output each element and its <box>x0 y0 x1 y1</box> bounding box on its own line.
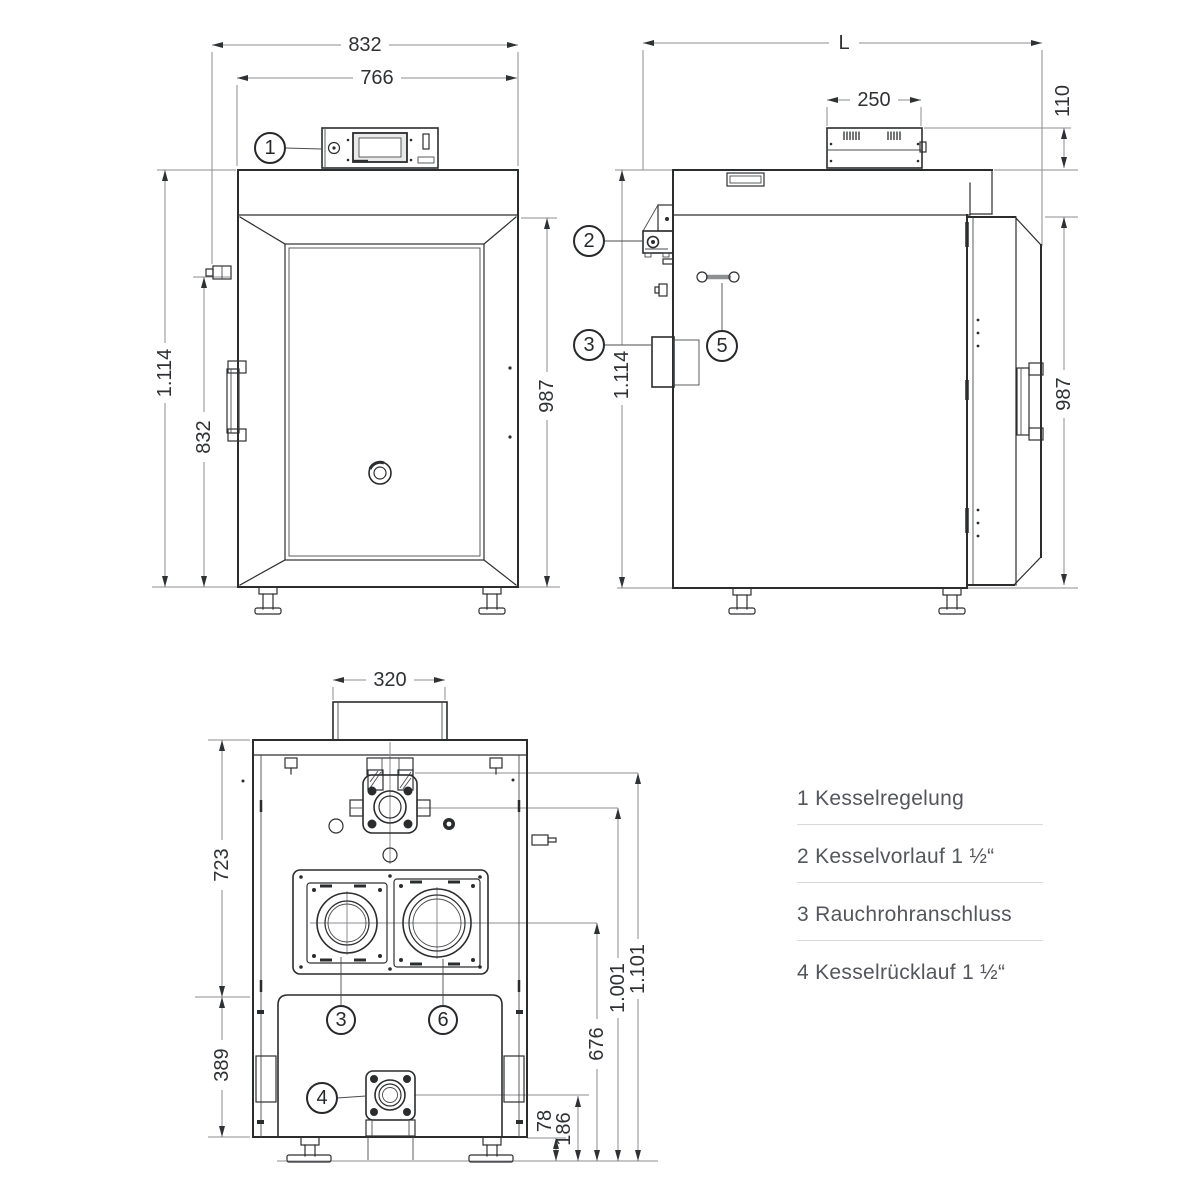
callout-number: 1 <box>264 137 275 159</box>
dim-label: 766 <box>360 67 393 89</box>
front-door-handle <box>227 361 246 441</box>
dim-label: 78 <box>534 1110 556 1132</box>
front-dim-width-outer: 832 <box>341 34 389 56</box>
dim-label: 832 <box>193 420 215 453</box>
side-flue-connection <box>652 337 699 387</box>
side-dim-panel-height: 110 <box>1052 85 1074 117</box>
dim-label: L <box>838 32 849 54</box>
legend-item-label: Kesselrücklauf 1 ½“ <box>815 961 1005 984</box>
side-dimension-lines <box>622 43 1064 588</box>
callout-rauchrohr: 3 <box>574 330 604 360</box>
front-dim-height-fitting: 832 <box>193 412 215 462</box>
rear-dim-lower-height: 389 <box>211 1040 233 1090</box>
rear-vorlauf-flange <box>350 742 430 864</box>
dim-label: 987 <box>1053 377 1075 410</box>
legend-item-label: Rauchrohranschluss <box>815 903 1012 926</box>
callout-number: 3 <box>335 1009 346 1031</box>
rear-dim-ruecklauf-center: 186 <box>553 1112 575 1145</box>
legend-item-number: 1 <box>797 787 809 810</box>
dim-label: 676 <box>586 1027 608 1060</box>
legend-item-label: Kesselregelung <box>815 787 964 810</box>
rear-dim-flange-top: 1.101 <box>627 939 649 999</box>
rear-dim-upper-height: 723 <box>211 840 233 890</box>
boiler-dimension-drawing: 832 766 1.114 832 987 <box>0 0 1200 1200</box>
front-callout-leader <box>285 148 322 149</box>
dim-label: 250 <box>857 89 890 111</box>
rear-dim-duct-width: 320 <box>366 669 414 691</box>
rear-lower-section <box>256 995 524 1137</box>
legend-item-number: 4 <box>797 961 809 984</box>
side-extension-lines <box>615 50 1078 588</box>
legend-item-number: 3 <box>797 903 809 926</box>
dim-label: 832 <box>348 34 381 56</box>
rear-opening-plate <box>293 870 488 974</box>
rear-ruecklauf-flange <box>366 1071 415 1160</box>
rear-dim-base-height: 78 <box>534 1110 556 1132</box>
dim-label: 1.114 <box>611 351 633 400</box>
front-dim-height-body: 987 <box>536 372 558 420</box>
callout-number: 5 <box>716 335 727 357</box>
legend-item-rauchrohranschluss: 3 Rauchrohranschluss <box>797 883 1043 941</box>
rear-dim-vorlauf-center: 1.001 <box>607 958 629 1018</box>
callout-number: 6 <box>437 1009 448 1031</box>
callout-vorlauf: 2 <box>574 226 604 256</box>
side-body-outline <box>673 170 992 588</box>
rear-feet <box>287 1137 513 1162</box>
front-dim-width-body: 766 <box>353 67 401 89</box>
legend-item-kesselruecklauf: 4 Kesselrücklauf 1 ½“ <box>797 941 1043 998</box>
side-dim-height-total: 1.114 <box>611 345 633 405</box>
side-dim-length: L <box>829 32 859 54</box>
callout-number: 3 <box>583 334 594 356</box>
callout-number: 2 <box>583 230 594 252</box>
side-dim-height-door: 987 <box>1053 370 1075 418</box>
legend: 1 Kesselregelung 2 Kesselvorlauf 1 ½“ 3 … <box>797 787 1043 998</box>
callout-opening-left: 3 <box>327 1006 355 1034</box>
side-dim-panel-depth: 250 <box>850 89 898 111</box>
dim-label: 1.101 <box>627 944 649 994</box>
callout-number: 4 <box>316 1087 327 1109</box>
callout-griff: 5 <box>707 331 737 361</box>
legend-item-kesselregelung: 1 Kesselregelung <box>797 787 1043 825</box>
front-dim-height-total: 1.114 <box>154 343 176 403</box>
side-feet <box>729 588 965 614</box>
front-feet <box>255 587 505 614</box>
side-view: L 250 110 1.114 987 <box>574 32 1078 614</box>
dim-label: 1.114 <box>154 349 176 398</box>
legend-item-kesselvorlauf: 2 Kesselvorlauf 1 ½“ <box>797 825 1043 883</box>
dim-label: 110 <box>1052 85 1074 117</box>
rear-body-outline <box>242 740 528 1137</box>
rear-extension-lines <box>195 687 658 1161</box>
legend-item-number: 2 <box>797 845 809 868</box>
dim-label: 389 <box>211 1048 233 1081</box>
legend-item-label: Kesselvorlauf 1 ½“ <box>815 845 994 868</box>
front-control-panel <box>322 128 438 168</box>
rear-view: 320 723 389 676 1.001 1.101 186 78 <box>195 669 658 1162</box>
front-dimension-lines <box>165 45 547 587</box>
side-control-panel <box>827 128 926 168</box>
dim-label: 1.001 <box>607 963 629 1013</box>
rear-flue-duct <box>333 702 447 740</box>
front-body-outline <box>238 170 518 587</box>
dim-label: 987 <box>536 379 558 412</box>
side-drain-stub <box>655 284 667 296</box>
dim-label: 186 <box>553 1112 575 1145</box>
dim-label: 723 <box>211 848 233 881</box>
dim-label: 320 <box>373 669 406 691</box>
side-carry-handle <box>697 272 739 331</box>
front-view: 832 766 1.114 832 987 <box>152 34 560 614</box>
rear-dim-openings-center: 676 <box>586 1019 608 1069</box>
side-vorlauf-fitting <box>643 205 673 264</box>
front-door-knob <box>369 462 391 484</box>
callout-opening-right: 6 <box>429 1006 457 1034</box>
rear-dimension-lines <box>222 680 638 1161</box>
callout-ruecklauf: 4 <box>307 1083 337 1113</box>
side-door-profile <box>968 217 1043 585</box>
drawing-canvas: 832 766 1.114 832 987 <box>0 0 1200 1200</box>
callout-controller: 1 <box>255 133 285 163</box>
